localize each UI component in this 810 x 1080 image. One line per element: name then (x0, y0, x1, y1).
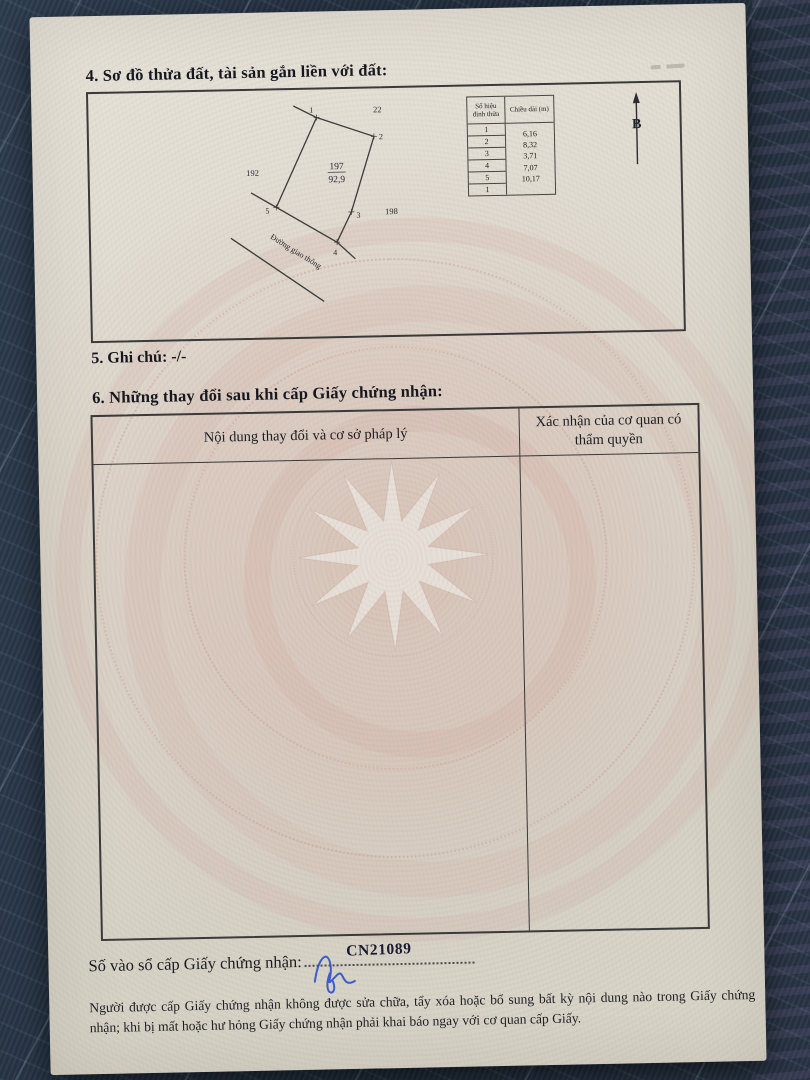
vertex-cell: 4 (468, 160, 505, 173)
certificate-page: 4. Sơ đồ thửa đất, tài sản gắn liền với … (29, 3, 766, 1075)
section4-heading: 4. Sơ đồ thửa đất, tài sản gắn liền với … (85, 60, 387, 86)
plot-sketch: 1 2 3 4 5 192 22 198 197 92,9 Đường giao… (88, 82, 684, 341)
vertex-label-1: 1 (309, 106, 313, 115)
north-label: B (632, 117, 642, 132)
photo-background-fabric: 4. Sơ đồ thửa đất, tài sản gắn liền với … (0, 0, 810, 1080)
road-name-label: Đường giao thông (269, 232, 323, 270)
section5-label: 5. Ghi chú: (91, 349, 167, 368)
vertex-cell: 2 (468, 136, 505, 149)
road-line (231, 236, 324, 303)
corner-smudge (650, 64, 684, 70)
vertex-cell: 3 (468, 148, 505, 161)
vertex-label-2: 2 (379, 132, 383, 141)
vertex-label-3: 3 (356, 211, 360, 220)
vertex-table-header-vertex: Số hiệu đỉnh thửa (467, 97, 506, 125)
changes-table-col1-header: Nội dung thay đổi và cơ sở pháp lý (92, 409, 519, 466)
vertex-cell: 1 (469, 184, 506, 196)
plot-area-label: 92,9 (328, 175, 345, 185)
length-cell: 10,17 (507, 173, 555, 185)
registry-line: Số vào sổ cấp Giấy chứng nhận: CN21089 (88, 949, 475, 977)
vertex-label-5: 5 (265, 207, 269, 216)
vertex-label-4: 4 (333, 248, 337, 257)
registry-label: Số vào sổ cấp Giấy chứng nhận: (88, 952, 302, 975)
vertex-table-length-column: 6,16 8,32 3,71 7,07 10,17 (506, 123, 555, 195)
adjacent-plot-west-label: 192 (246, 168, 259, 178)
section5-value: -/- (171, 348, 186, 365)
certificate-notice: Người được cấp Giấy chứng nhận không đượ… (89, 985, 756, 1039)
plot-number-label: 197 (329, 162, 344, 172)
adjacent-plot-north-label: 22 (373, 104, 382, 114)
certificate-content: 4. Sơ đồ thửa đất, tài sản gắn liền với … (29, 3, 766, 1075)
changes-table-col2-body (520, 453, 708, 930)
changes-table-col2-header: Xác nhận của cơ quan có thẩm quyền (519, 405, 698, 457)
vertex-table-vertex-column: 1 2 3 4 5 1 (468, 124, 507, 196)
adjacent-plot-east-label: 198 (385, 206, 398, 216)
changes-table: Nội dung thay đổi và cơ sở pháp lý Xác n… (90, 403, 709, 941)
vertex-table-header-length: Chiều dài (m) (505, 96, 554, 124)
section6-heading: 6. Những thay đổi sau khi cấp Giấy chứng… (92, 381, 443, 408)
vertex-cell: 1 (468, 124, 505, 137)
vertex-length-table: Số hiệu đỉnh thửa Chiều dài (m) 1 2 3 4 … (466, 95, 556, 197)
vertex-cell: 5 (469, 172, 506, 185)
north-arrow: B (631, 92, 642, 164)
changes-table-col1-body (93, 457, 529, 939)
plot-diagram: 1 2 3 4 5 192 22 198 197 92,9 Đường giao… (86, 80, 686, 343)
section5-note: 5. Ghi chú: -/- (91, 348, 186, 368)
